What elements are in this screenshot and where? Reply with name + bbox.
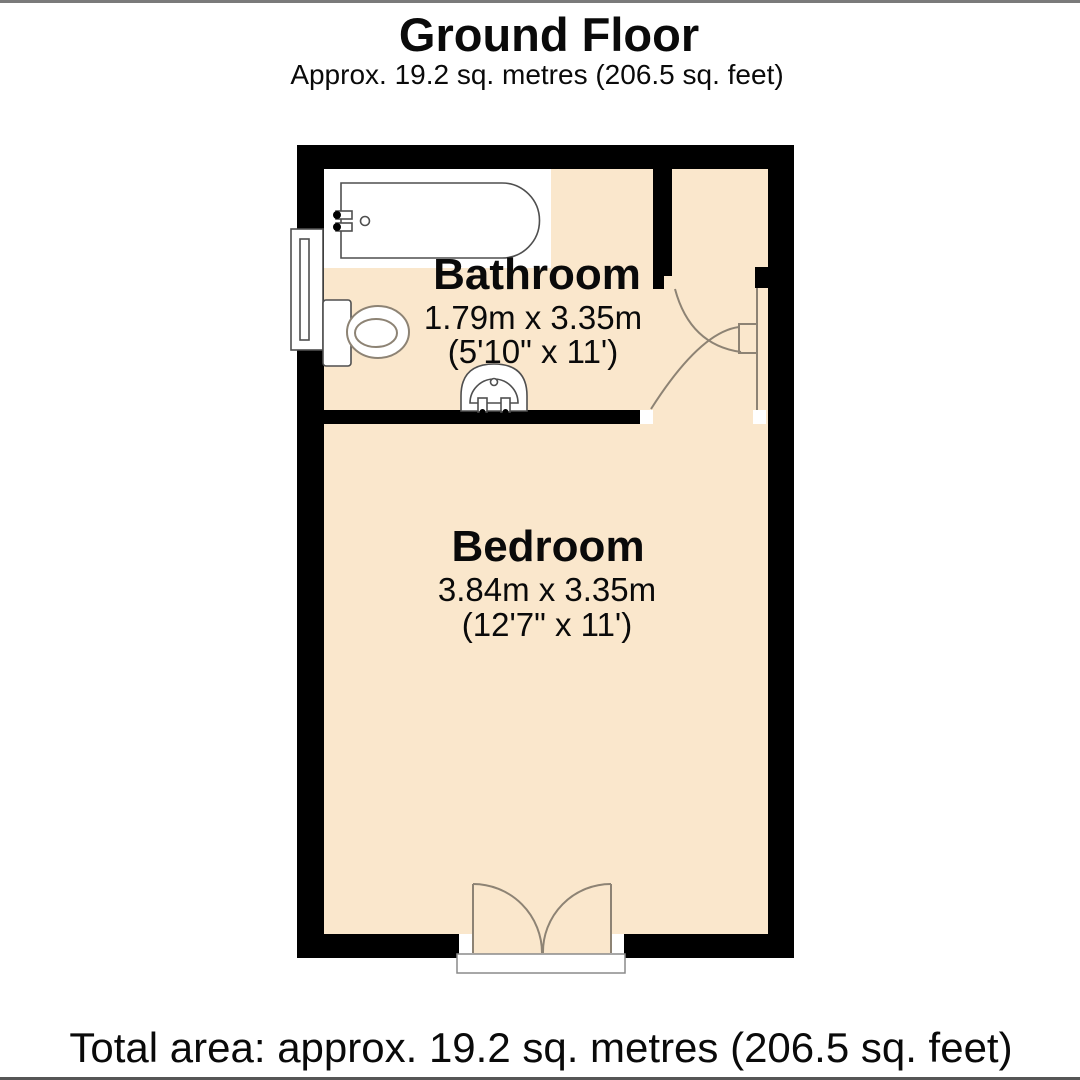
- total-area-text: Total area: approx. 19.2 sq. metres (206…: [69, 1026, 1012, 1070]
- bedroom-size-metric: 3.84m x 3.35m: [438, 573, 656, 608]
- bathroom-size-imperial: (5'10" x 11'): [448, 335, 618, 370]
- bedroom-size-imperial: (12'7" x 11'): [462, 608, 632, 643]
- bathroom-label: Bathroom: [433, 252, 641, 298]
- sink-icon: [461, 364, 527, 415]
- window-icon: [291, 229, 323, 350]
- right-wall-notch: [755, 267, 769, 288]
- floorplan-page: Ground Floor Approx. 19.2 sq. metres (20…: [0, 0, 1080, 1080]
- bathroom-size-metric: 1.79m x 3.35m: [424, 301, 642, 336]
- jamb: [640, 410, 653, 424]
- bathroom-hall-wall: [653, 169, 672, 276]
- jamb: [610, 934, 624, 955]
- jamb: [753, 410, 766, 424]
- bedroom-label: Bedroom: [451, 524, 644, 570]
- bathroom-hall-wall-jamb: [653, 276, 664, 289]
- jamb: [459, 934, 473, 955]
